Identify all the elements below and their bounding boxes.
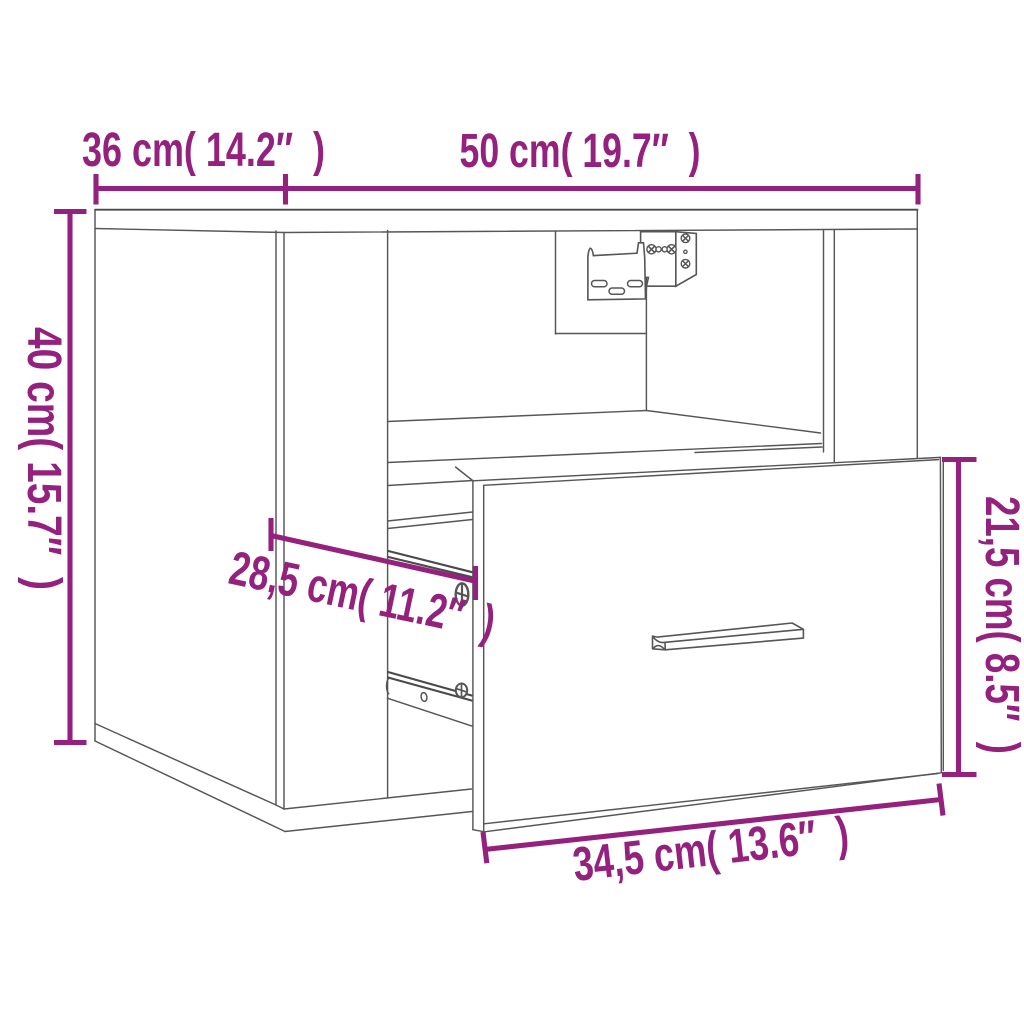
svg-text:40 cm( 15.7″ ): 40 cm( 15.7″ ) [17, 327, 70, 590]
svg-text:21,5 cm( 8.5″ ): 21,5 cm( 8.5″ ) [975, 496, 1024, 754]
svg-text:50 cm( 19.7″ ): 50 cm( 19.7″ ) [460, 125, 701, 178]
svg-text:36 cm( 14.2″ ): 36 cm( 14.2″ ) [82, 124, 325, 177]
